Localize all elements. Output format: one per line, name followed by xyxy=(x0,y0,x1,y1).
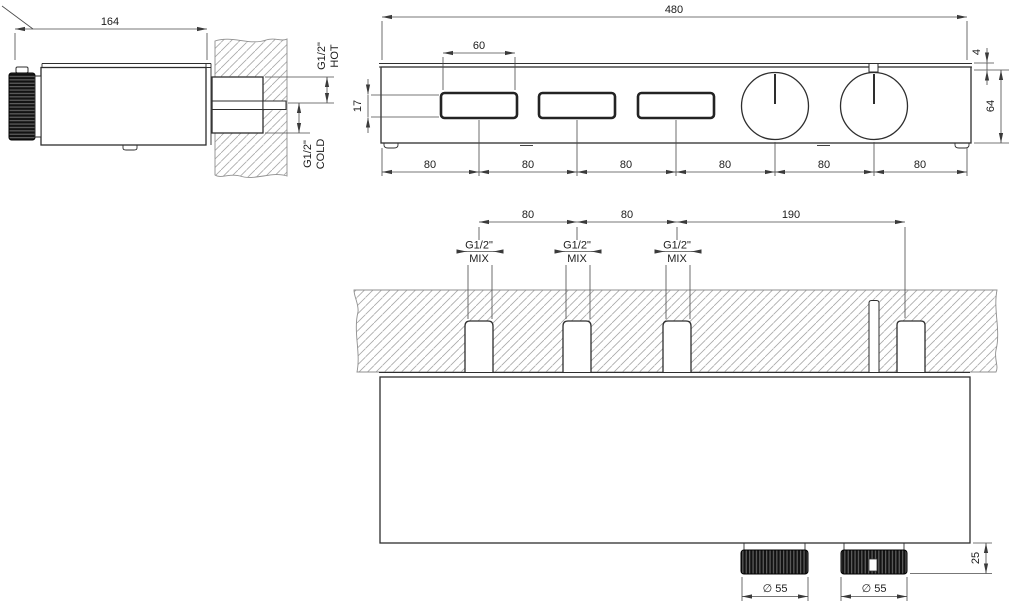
knob-tab xyxy=(16,67,28,73)
dim-port-spacing-2: 80 xyxy=(621,209,633,221)
dim-spacing-2: 80 xyxy=(522,159,534,171)
outlet-pipe-stub xyxy=(263,101,286,110)
hot-inlet-label: HOT xyxy=(329,44,341,68)
front-view: 480 60 17 4 64 80 xyxy=(352,4,1009,176)
dim-spacing-3: 80 xyxy=(620,159,632,171)
dim-knob-diameter-1: ∅ 55 xyxy=(763,583,788,595)
port-thread: G1/2" xyxy=(563,240,591,252)
dim-spacing-4: 80 xyxy=(719,159,731,171)
dim-overall-length: 164 xyxy=(101,16,119,28)
valve-cartridge-in-wall xyxy=(212,77,263,133)
dim-plate-offset: 4 xyxy=(971,49,983,55)
bottom-clip xyxy=(123,145,137,150)
function-button-3 xyxy=(638,93,714,118)
port-thread: G1/2" xyxy=(663,240,691,252)
port-flow: MIX xyxy=(667,253,687,265)
dim-button-height: 17 xyxy=(352,100,364,112)
side-view: 164 G1/2" HOT G1/2" COLD xyxy=(2,6,341,177)
shower-pipe xyxy=(869,301,879,373)
diverter-tab xyxy=(869,64,878,73)
technical-drawing-sheet: 164 G1/2" HOT G1/2" COLD 480 xyxy=(0,0,1024,607)
dim-overall-width: 480 xyxy=(665,4,683,16)
hot-inlet-thread: G1/2" xyxy=(316,42,328,70)
outlet-port xyxy=(897,321,925,372)
dim-knob-projection: 25 xyxy=(970,552,982,564)
cold-inlet-label: COLD xyxy=(315,139,327,170)
plan-view: 80 80 190 G1/2" MIX G1/2" MIX G1/2" xyxy=(354,209,998,601)
mix-port-3 xyxy=(663,321,691,372)
dim-port-spacing-3: 190 xyxy=(782,209,800,221)
function-button-2 xyxy=(539,93,615,118)
dim-body-height: 64 xyxy=(985,100,997,112)
mix-port-1 xyxy=(465,321,493,372)
foot-left xyxy=(384,143,398,148)
temperature-knob-plan xyxy=(741,550,808,574)
port-flow: MIX xyxy=(567,253,587,265)
dim-port-spacing-1: 80 xyxy=(522,209,534,221)
knob-collar xyxy=(35,76,41,137)
body-plan xyxy=(380,377,970,543)
cold-inlet-thread: G1/2" xyxy=(302,140,314,168)
function-button-1 xyxy=(441,93,517,118)
dim-spacing-5: 80 xyxy=(818,159,830,171)
dim-spacing-1: 80 xyxy=(424,159,436,171)
control-knob-side xyxy=(9,73,35,140)
dim-button-width: 60 xyxy=(473,40,485,52)
port-flow: MIX xyxy=(469,253,489,265)
valve-body-side xyxy=(41,68,206,146)
mix-port-2 xyxy=(563,321,591,372)
dim-spacing-6: 80 xyxy=(914,159,926,171)
knob-marker xyxy=(869,559,877,571)
port-thread: G1/2" xyxy=(465,240,493,252)
foot-right xyxy=(955,143,969,148)
drawing-canvas: 164 G1/2" HOT G1/2" COLD 480 xyxy=(0,0,1024,607)
dim-knob-diameter-2: ∅ 55 xyxy=(862,583,887,595)
